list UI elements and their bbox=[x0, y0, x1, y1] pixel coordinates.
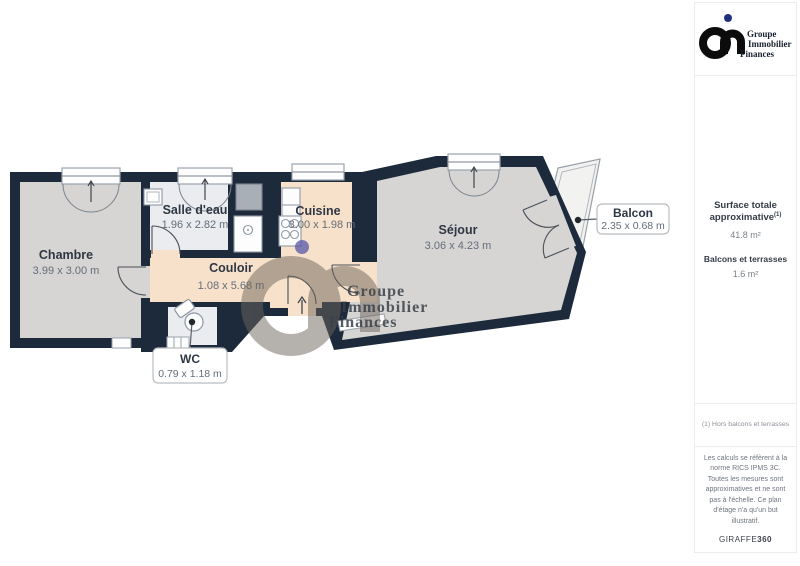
salledeau-door-gap bbox=[151, 250, 180, 258]
disclaimer-section: Les calculs se réfèrent à la norme RICS … bbox=[695, 446, 796, 553]
room-couloir-label: Couloir bbox=[209, 261, 253, 275]
chambre-step bbox=[112, 338, 131, 348]
info-panel: Groupe Immobilier Finances Surface total… bbox=[694, 2, 797, 553]
room-sejour-label: Séjour bbox=[439, 223, 478, 237]
surface-footnote-marker: (1) bbox=[774, 212, 781, 218]
balcon-callout-label: Balcon bbox=[613, 206, 653, 220]
room-sejour-dims: 3.06 x 4.23 m bbox=[425, 240, 492, 252]
svg-text:Groupe: Groupe bbox=[347, 283, 405, 300]
balcon-callout-dot bbox=[575, 217, 581, 223]
balcony-surface-label: Balcons et terrasses bbox=[704, 254, 787, 264]
surface-total-label: Surface totale approximative(1) bbox=[699, 200, 792, 225]
disclaimer-text: Les calculs se réfèrent à la norme RICS … bbox=[700, 454, 791, 528]
svg-text:Immobilier: Immobilier bbox=[748, 39, 792, 49]
floor-plan: Chambre 3.99 x 3.00 m Salle d'eau 1.96 x… bbox=[0, 0, 694, 566]
room-salledeau-dims: 1.96 x 2.82 m bbox=[162, 219, 229, 231]
balcon-callout-dims: 2.35 x 0.68 m bbox=[601, 220, 665, 232]
svg-text:Finances: Finances bbox=[329, 314, 397, 331]
agency-logo-dot bbox=[724, 14, 732, 22]
svg-text:Groupe: Groupe bbox=[747, 29, 776, 39]
floorplan-page: Chambre 3.99 x 3.00 m Salle d'eau 1.96 x… bbox=[0, 0, 800, 566]
footnote: (1) Hors balcons et terrasses bbox=[695, 403, 796, 446]
chambre-door-gap bbox=[141, 266, 150, 298]
surface-total-value: 41.8 m² bbox=[730, 230, 761, 240]
room-salledeau-label: Salle d'eau bbox=[163, 203, 228, 217]
room-chambre-label: Chambre bbox=[39, 248, 93, 262]
watermark-i-dot bbox=[295, 240, 309, 254]
agency-logo: Groupe Immobilier Finances bbox=[695, 3, 796, 76]
room-cuisine-label: Cuisine bbox=[295, 204, 340, 218]
room-cuisine-dims: 3.00 x 1.98 m bbox=[289, 219, 356, 231]
wc-callout-dims: 0.79 x 1.18 m bbox=[158, 368, 222, 380]
surface-summary: Surface totale approximative(1) 41.8 m² … bbox=[695, 76, 796, 403]
washer-icon bbox=[236, 184, 262, 210]
wc-callout-dot bbox=[189, 319, 195, 325]
svg-text:Finances: Finances bbox=[740, 49, 774, 59]
agency-logo-monogram bbox=[703, 31, 741, 55]
shower-drain-dot bbox=[247, 229, 249, 231]
balcony-surface-value: 1.6 m² bbox=[733, 269, 759, 279]
brand-logo: GIRAFFE360 bbox=[700, 535, 791, 544]
agency-logo-text: Groupe Immobilier Finances bbox=[740, 29, 792, 59]
wc-callout-label: WC bbox=[180, 352, 200, 366]
room-chambre-dims: 3.99 x 3.00 m bbox=[33, 265, 100, 277]
